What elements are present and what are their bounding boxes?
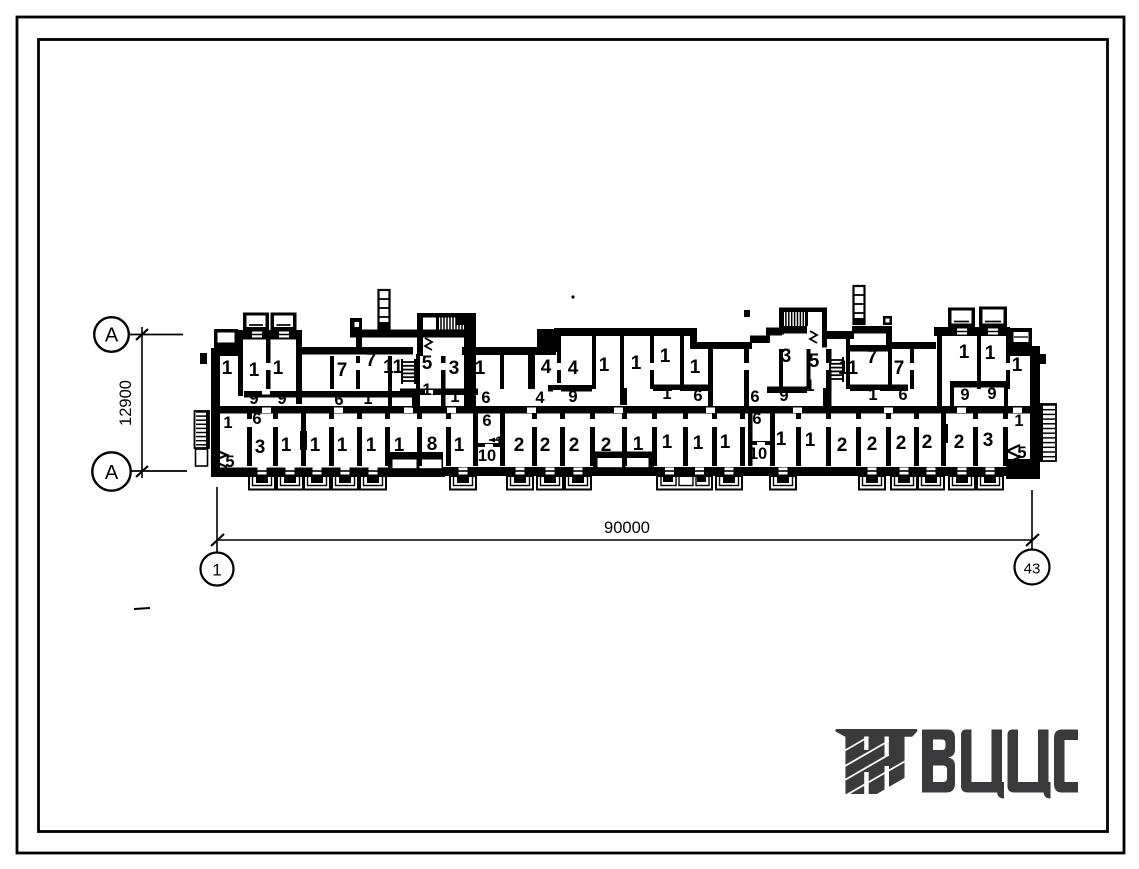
svg-text:1: 1 bbox=[868, 386, 877, 404]
svg-text:2: 2 bbox=[922, 432, 933, 453]
svg-text:9: 9 bbox=[960, 386, 969, 404]
svg-text:1: 1 bbox=[690, 357, 701, 378]
svg-text:1: 1 bbox=[1014, 412, 1023, 430]
svg-text:9: 9 bbox=[779, 387, 788, 405]
svg-text:3: 3 bbox=[781, 346, 792, 367]
svg-text:1: 1 bbox=[805, 377, 814, 395]
svg-text:6: 6 bbox=[482, 412, 491, 430]
svg-text:6: 6 bbox=[481, 389, 490, 407]
svg-text:2: 2 bbox=[569, 435, 580, 456]
svg-text:6: 6 bbox=[693, 387, 702, 405]
svg-text:1: 1 bbox=[693, 433, 704, 454]
svg-text:1: 1 bbox=[222, 358, 233, 379]
svg-text:6: 6 bbox=[334, 391, 343, 409]
svg-text:1: 1 bbox=[985, 343, 996, 364]
svg-text:4: 4 bbox=[535, 389, 545, 407]
svg-text:1: 1 bbox=[273, 358, 284, 379]
svg-text:1: 1 bbox=[633, 434, 644, 455]
svg-text:2: 2 bbox=[954, 432, 965, 453]
svg-text:10: 10 bbox=[478, 447, 496, 465]
svg-text:2: 2 bbox=[540, 435, 551, 456]
svg-text:90000: 90000 bbox=[604, 519, 650, 537]
svg-text:1: 1 bbox=[720, 432, 731, 453]
svg-text:2: 2 bbox=[514, 435, 525, 456]
svg-text:1: 1 bbox=[337, 435, 348, 456]
svg-text:6: 6 bbox=[252, 410, 261, 428]
svg-text:2: 2 bbox=[867, 434, 878, 455]
svg-text:11: 11 bbox=[838, 358, 859, 379]
svg-text:5: 5 bbox=[1017, 444, 1026, 462]
svg-text:6: 6 bbox=[898, 386, 907, 404]
svg-text:6: 6 bbox=[752, 410, 761, 428]
svg-text:7: 7 bbox=[337, 360, 348, 381]
svg-text:5: 5 bbox=[422, 353, 433, 374]
svg-text:9: 9 bbox=[249, 390, 258, 408]
svg-text:9: 9 bbox=[987, 385, 996, 403]
svg-text:12900: 12900 bbox=[117, 380, 135, 426]
svg-text:1: 1 bbox=[212, 561, 221, 580]
svg-text:1: 1 bbox=[662, 385, 671, 403]
svg-text:9: 9 bbox=[568, 388, 577, 406]
svg-text:1: 1 bbox=[422, 381, 431, 399]
svg-text:1: 1 bbox=[249, 360, 260, 381]
svg-text:1: 1 bbox=[223, 414, 232, 432]
svg-text:2: 2 bbox=[601, 435, 612, 456]
svg-text:7: 7 bbox=[366, 350, 377, 371]
svg-text:1: 1 bbox=[1012, 355, 1023, 376]
svg-text:1: 1 bbox=[495, 433, 503, 449]
svg-text:1: 1 bbox=[454, 435, 465, 456]
svg-text:3: 3 bbox=[449, 358, 460, 379]
svg-text:1: 1 bbox=[363, 390, 372, 408]
svg-text:3: 3 bbox=[255, 437, 266, 458]
svg-text:43: 43 bbox=[1024, 561, 1041, 578]
svg-text:11: 11 bbox=[383, 357, 404, 378]
svg-text:5: 5 bbox=[809, 351, 820, 372]
svg-text:2: 2 bbox=[896, 433, 907, 454]
svg-text:7: 7 bbox=[867, 347, 878, 368]
svg-text:4: 4 bbox=[541, 357, 552, 378]
svg-text:1: 1 bbox=[366, 435, 377, 456]
svg-text:1: 1 bbox=[660, 346, 671, 367]
svg-text:1: 1 bbox=[599, 355, 610, 376]
svg-text:1: 1 bbox=[394, 435, 405, 456]
svg-text:1: 1 bbox=[450, 388, 459, 406]
svg-text:1: 1 bbox=[281, 435, 292, 456]
svg-text:1: 1 bbox=[805, 430, 816, 451]
svg-text:3: 3 bbox=[983, 430, 994, 451]
svg-text:1: 1 bbox=[631, 353, 642, 374]
svg-text:4: 4 bbox=[568, 358, 579, 379]
svg-text:1: 1 bbox=[662, 432, 673, 453]
svg-text:5: 5 bbox=[225, 453, 234, 471]
svg-text:6: 6 bbox=[750, 388, 759, 406]
svg-text:10: 10 bbox=[749, 445, 767, 463]
svg-text:8: 8 bbox=[427, 434, 438, 455]
svg-text:2: 2 bbox=[837, 435, 848, 456]
svg-text:А: А bbox=[105, 325, 119, 347]
svg-text:1: 1 bbox=[475, 358, 486, 379]
svg-text:9: 9 bbox=[277, 390, 286, 408]
svg-text:1: 1 bbox=[959, 342, 970, 363]
svg-text:А: А bbox=[105, 462, 119, 484]
svg-text:1: 1 bbox=[310, 435, 321, 456]
svg-text:7: 7 bbox=[894, 358, 905, 379]
svg-text:1: 1 bbox=[776, 429, 787, 450]
